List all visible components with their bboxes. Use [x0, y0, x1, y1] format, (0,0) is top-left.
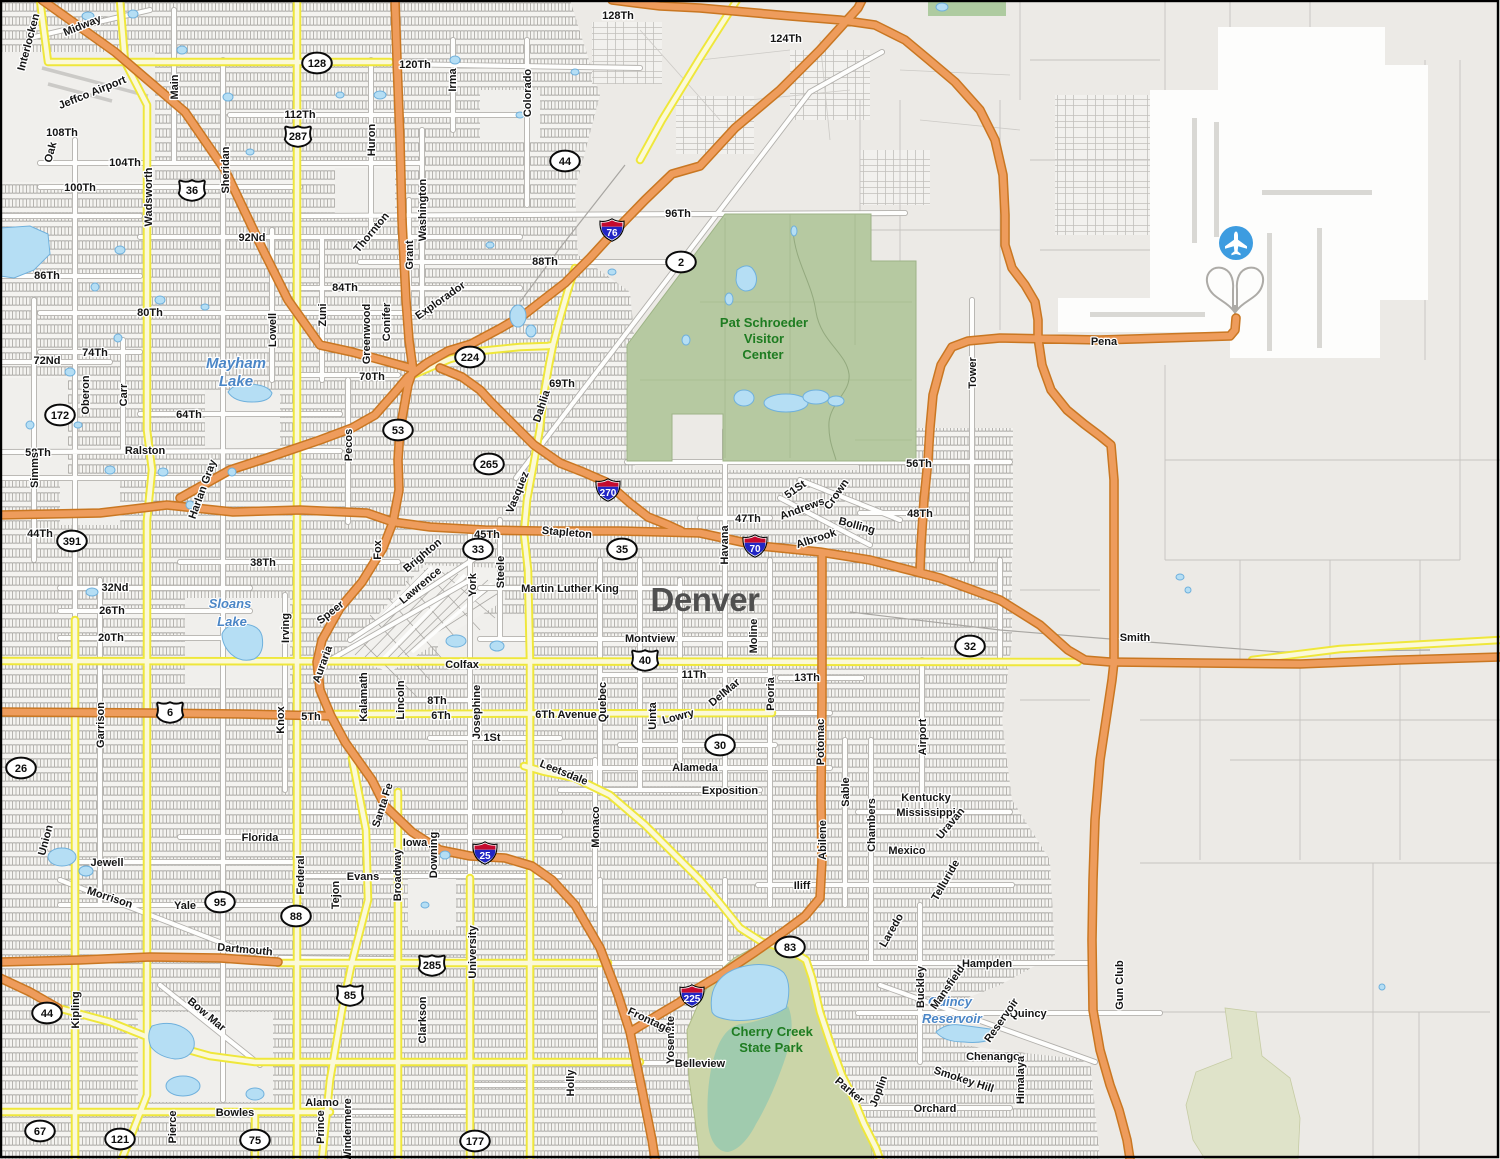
- svg-text:95: 95: [214, 897, 226, 909]
- svg-text:128Th: 128Th: [602, 10, 634, 22]
- svg-text:Colorado: Colorado: [522, 69, 534, 118]
- svg-text:Mayham: Mayham: [206, 355, 266, 372]
- svg-text:University: University: [467, 925, 479, 979]
- svg-text:Chambers: Chambers: [866, 798, 878, 852]
- svg-text:38Th: 38Th: [250, 557, 276, 569]
- svg-text:Holly: Holly: [565, 1069, 577, 1097]
- svg-text:26: 26: [15, 763, 27, 775]
- svg-text:80Th: 80Th: [137, 307, 163, 319]
- svg-text:86Th: 86Th: [34, 270, 60, 282]
- svg-text:75: 75: [249, 1135, 261, 1147]
- svg-text:Belleview: Belleview: [675, 1058, 726, 1070]
- svg-text:Iliff: Iliff: [794, 880, 811, 892]
- svg-text:Fox: Fox: [372, 539, 384, 559]
- svg-text:Gun Club: Gun Club: [1114, 960, 1126, 1010]
- svg-text:Martin Luther King: Martin Luther King: [521, 583, 619, 595]
- svg-text:Center: Center: [742, 347, 783, 362]
- svg-text:York: York: [467, 572, 479, 597]
- svg-text:Peoria: Peoria: [765, 676, 777, 711]
- svg-text:44: 44: [41, 1008, 54, 1020]
- svg-text:Wadsworth: Wadsworth: [143, 167, 155, 226]
- svg-text:92Nd: 92Nd: [239, 232, 266, 244]
- svg-text:Kalamath: Kalamath: [358, 672, 370, 722]
- svg-text:84Th: 84Th: [332, 282, 358, 294]
- svg-text:Pena: Pena: [1091, 336, 1118, 348]
- svg-text:Bowles: Bowles: [216, 1107, 255, 1119]
- svg-text:Huron: Huron: [366, 124, 378, 157]
- svg-text:20Th: 20Th: [98, 632, 124, 644]
- svg-text:Garrison: Garrison: [95, 702, 107, 748]
- svg-text:Abilene: Abilene: [817, 820, 829, 860]
- svg-text:285: 285: [423, 960, 441, 972]
- svg-text:25: 25: [479, 851, 491, 862]
- svg-text:85: 85: [344, 990, 356, 1002]
- svg-text:1St: 1St: [483, 732, 500, 744]
- svg-text:Sheridan: Sheridan: [220, 146, 232, 193]
- svg-text:72Nd: 72Nd: [34, 355, 61, 367]
- svg-text:Ralston: Ralston: [125, 445, 166, 457]
- svg-text:6: 6: [167, 707, 173, 719]
- svg-text:Federal: Federal: [295, 855, 307, 894]
- svg-text:13Th: 13Th: [794, 672, 820, 684]
- svg-text:Evans: Evans: [347, 871, 379, 883]
- svg-text:Florida: Florida: [242, 832, 280, 844]
- svg-text:Yale: Yale: [174, 900, 196, 912]
- svg-text:Mexico: Mexico: [888, 845, 926, 857]
- svg-text:36: 36: [186, 185, 198, 197]
- svg-text:Josephine: Josephine: [471, 685, 483, 739]
- svg-text:Visitor: Visitor: [744, 331, 784, 346]
- svg-text:Mississippi: Mississippi: [896, 807, 955, 819]
- svg-text:Greenwood: Greenwood: [361, 304, 373, 365]
- svg-text:121: 121: [111, 1134, 129, 1146]
- svg-text:Buckley: Buckley: [915, 965, 927, 1008]
- svg-text:96Th: 96Th: [665, 208, 691, 220]
- svg-text:64Th: 64Th: [176, 409, 202, 421]
- svg-text:56Th: 56Th: [906, 458, 932, 470]
- svg-text:26Th: 26Th: [99, 605, 125, 617]
- svg-text:224: 224: [461, 352, 480, 364]
- svg-text:44: 44: [559, 156, 572, 168]
- svg-text:Conifer: Conifer: [381, 302, 393, 341]
- svg-text:Carr: Carr: [118, 383, 130, 406]
- svg-text:33: 33: [472, 544, 484, 556]
- svg-text:Kentucky: Kentucky: [901, 792, 951, 804]
- svg-text:Lowell: Lowell: [267, 313, 279, 347]
- svg-text:270: 270: [600, 488, 617, 499]
- svg-text:11Th: 11Th: [681, 669, 706, 681]
- svg-text:Havana: Havana: [719, 525, 731, 565]
- svg-text:Iowa: Iowa: [403, 837, 428, 849]
- svg-text:44Th: 44Th: [27, 528, 53, 540]
- svg-text:74Th: 74Th: [82, 347, 108, 359]
- svg-text:47Th: 47Th: [735, 513, 761, 525]
- svg-text:Alamo: Alamo: [305, 1097, 339, 1109]
- svg-text:69Th: 69Th: [549, 378, 575, 390]
- svg-text:35: 35: [616, 544, 628, 556]
- svg-text:Orchard: Orchard: [914, 1103, 957, 1115]
- svg-text:State Park: State Park: [739, 1040, 803, 1055]
- svg-text:128: 128: [308, 58, 326, 70]
- svg-text:70: 70: [749, 544, 761, 555]
- svg-text:Cherry Creek: Cherry Creek: [731, 1024, 813, 1039]
- svg-text:Smith: Smith: [1120, 632, 1151, 644]
- svg-text:108Th: 108Th: [46, 127, 78, 139]
- svg-text:32Nd: 32Nd: [102, 582, 129, 594]
- svg-text:287: 287: [289, 131, 307, 143]
- svg-text:Broadway: Broadway: [392, 848, 404, 901]
- svg-text:Monaco: Monaco: [590, 806, 602, 848]
- svg-text:Airport: Airport: [917, 718, 929, 755]
- svg-text:Sable: Sable: [840, 777, 852, 806]
- svg-text:6Th: 6Th: [431, 710, 451, 722]
- svg-text:Tejon: Tejon: [330, 880, 342, 909]
- svg-text:Knox: Knox: [275, 705, 287, 733]
- svg-text:5Th: 5Th: [301, 711, 321, 723]
- svg-text:Irving: Irving: [280, 613, 292, 643]
- svg-text:40: 40: [639, 655, 651, 667]
- svg-text:Lincoln: Lincoln: [395, 680, 407, 719]
- svg-text:177: 177: [466, 1136, 484, 1148]
- svg-text:Potomac: Potomac: [815, 719, 827, 765]
- svg-text:Pierce: Pierce: [167, 1110, 179, 1143]
- svg-text:Downing: Downing: [428, 832, 440, 878]
- svg-text:Hampden: Hampden: [962, 958, 1012, 970]
- svg-text:70Th: 70Th: [359, 371, 385, 383]
- svg-text:83: 83: [784, 942, 796, 954]
- svg-text:Chenango: Chenango: [966, 1051, 1020, 1063]
- svg-text:Oberon: Oberon: [80, 375, 92, 414]
- svg-text:8Th: 8Th: [427, 695, 447, 707]
- svg-text:Denver: Denver: [651, 581, 761, 618]
- svg-text:48Th: 48Th: [907, 508, 933, 520]
- svg-text:30: 30: [714, 740, 726, 752]
- svg-text:Kipling: Kipling: [70, 991, 82, 1028]
- svg-text:Alameda: Alameda: [672, 762, 719, 774]
- svg-text:Grant: Grant: [404, 240, 416, 270]
- svg-text:112Th: 112Th: [284, 109, 315, 121]
- svg-text:Montview: Montview: [625, 633, 676, 645]
- svg-text:Sloans: Sloans: [209, 596, 252, 611]
- svg-text:Lake: Lake: [217, 614, 247, 629]
- svg-text:Irma: Irma: [447, 68, 459, 92]
- svg-text:391: 391: [63, 536, 81, 548]
- svg-text:Exposition: Exposition: [702, 785, 759, 797]
- svg-text:Clarkson: Clarkson: [417, 996, 429, 1043]
- svg-text:Windermere: Windermere: [342, 1098, 354, 1159]
- svg-text:32: 32: [964, 641, 976, 653]
- svg-text:Moline: Moline: [748, 619, 760, 654]
- svg-text:Colfax: Colfax: [445, 659, 480, 671]
- svg-text:Reservoir: Reservoir: [922, 1011, 983, 1026]
- svg-text:67: 67: [34, 1126, 46, 1138]
- svg-text:88Th: 88Th: [532, 256, 558, 268]
- svg-text:225: 225: [684, 994, 701, 1005]
- svg-text:Pecos: Pecos: [343, 429, 355, 461]
- svg-text:Himalaya: Himalaya: [1015, 1055, 1027, 1104]
- svg-text:Pat Schroeder: Pat Schroeder: [720, 315, 808, 330]
- svg-text:172: 172: [51, 410, 69, 422]
- svg-text:6Th Avenue: 6Th Avenue: [535, 709, 597, 721]
- svg-text:Washington: Washington: [417, 178, 429, 241]
- svg-text:76: 76: [606, 228, 618, 239]
- svg-text:Lake: Lake: [219, 373, 253, 390]
- svg-text:Jewell: Jewell: [90, 857, 123, 869]
- svg-text:Prince: Prince: [315, 1110, 327, 1144]
- svg-text:Uinta: Uinta: [647, 701, 659, 729]
- svg-text:124Th: 124Th: [770, 33, 802, 45]
- svg-text:265: 265: [480, 459, 498, 471]
- svg-text:53: 53: [392, 425, 404, 437]
- svg-text:100Th: 100Th: [64, 182, 96, 194]
- svg-text:120Th: 120Th: [399, 59, 431, 71]
- svg-text:Zuni: Zuni: [317, 303, 329, 326]
- svg-text:104Th: 104Th: [109, 157, 141, 169]
- svg-text:88: 88: [290, 911, 302, 923]
- svg-text:Steele: Steele: [495, 556, 507, 588]
- svg-text:Main: Main: [169, 74, 181, 99]
- svg-text:Tower: Tower: [967, 356, 979, 388]
- svg-text:Quebec: Quebec: [597, 682, 609, 722]
- svg-text:2: 2: [678, 257, 684, 269]
- svg-text:Simms: Simms: [29, 452, 41, 488]
